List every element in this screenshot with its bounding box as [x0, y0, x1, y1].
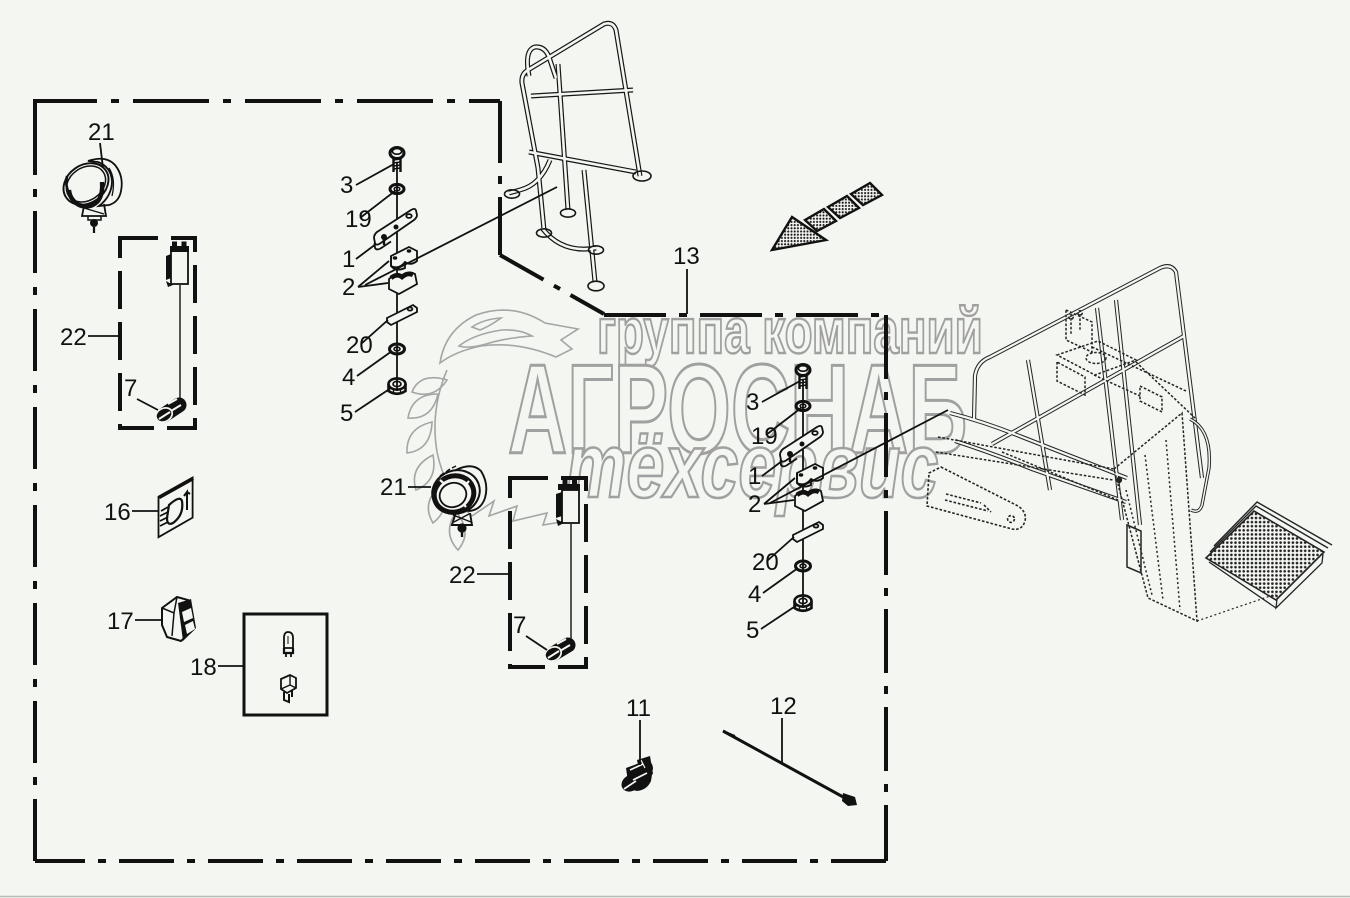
svg-text:17: 17	[107, 608, 134, 635]
svg-text:4: 4	[342, 364, 355, 391]
svg-text:2: 2	[342, 274, 355, 301]
svg-text:12: 12	[770, 693, 797, 720]
svg-text:16: 16	[104, 499, 131, 526]
svg-text:11: 11	[626, 695, 651, 722]
svg-text:22: 22	[60, 324, 87, 351]
svg-text:21: 21	[88, 119, 115, 146]
svg-text:22: 22	[449, 562, 476, 589]
svg-text:13: 13	[673, 243, 700, 270]
svg-text:18: 18	[190, 654, 217, 681]
svg-text:1: 1	[342, 246, 355, 273]
svg-text:21: 21	[380, 474, 407, 501]
svg-text:5: 5	[340, 400, 353, 427]
svg-text:7: 7	[124, 375, 137, 402]
svg-text:7: 7	[513, 612, 526, 639]
svg-text:19: 19	[345, 206, 372, 233]
svg-text:3: 3	[340, 172, 353, 199]
